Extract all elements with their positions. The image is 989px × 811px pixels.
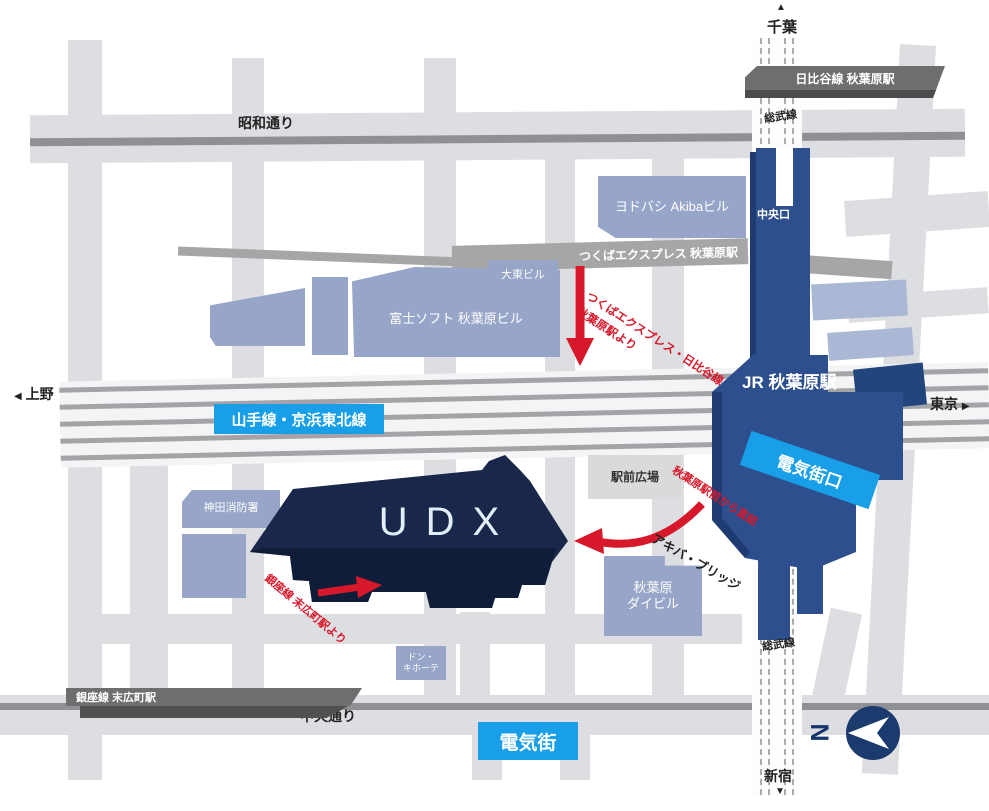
direction-tokyo: 東京 ▶: [930, 394, 970, 414]
direction-chiba: 千葉: [767, 16, 797, 37]
left-arrow-icon: ◀: [14, 391, 22, 402]
direction-ueno-label: 上野: [26, 386, 54, 402]
yamanote-badge: 山手線・京浜東北線: [214, 404, 384, 434]
direction-ueno: ◀ 上野: [14, 384, 54, 404]
direction-shinjuku: 新宿: [764, 766, 792, 786]
yamanote-badge-label: 山手線・京浜東北線: [231, 409, 366, 430]
central-exit-label: 中央口: [757, 206, 790, 222]
access-map: 昭和通り 中央通り つくばエクスプレス 秋葉原駅 日比谷線 秋葉原駅 銀座線 末…: [0, 0, 989, 811]
jr-tower-rail-gap: [776, 148, 793, 206]
right-arrow-icon: ▶: [962, 401, 970, 412]
udx-label: UDX: [340, 500, 538, 545]
jr-station-leg2: [797, 550, 823, 614]
compass: [846, 706, 900, 760]
electric-town-label: 電気街: [499, 728, 556, 755]
jr-station-leg1: [758, 550, 790, 640]
electric-town-badge: 電気街: [478, 722, 578, 760]
direction-chiba-arrow: ▲: [776, 2, 786, 13]
map-shapes-layer: [0, 0, 989, 811]
jr-station-label: JR 秋葉原駅: [742, 368, 836, 393]
compass-north-label: N: [807, 723, 836, 741]
direction-tokyo-label: 東京: [930, 396, 958, 412]
direction-shinjuku-arrow: ▼: [775, 786, 785, 797]
